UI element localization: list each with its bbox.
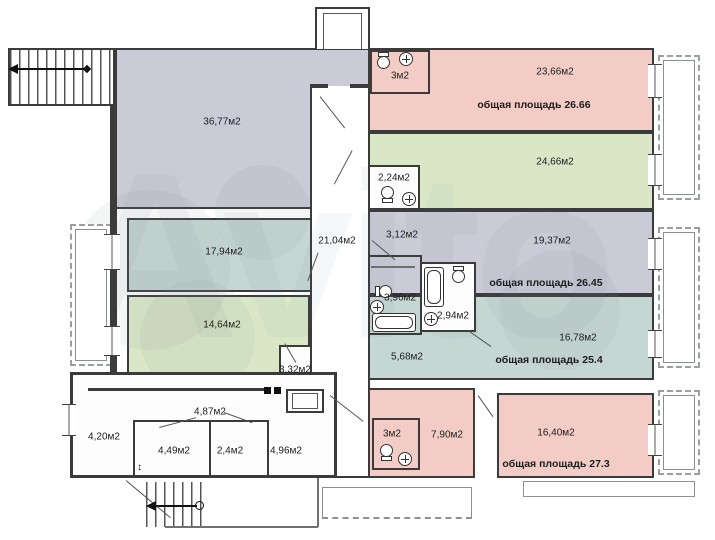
level-arrow-icon: ↕ (137, 462, 142, 473)
total-area-label: общая площадь 26.45 (489, 278, 602, 290)
room-label: 3,32м2 (279, 365, 311, 376)
room-label: 17,94м2 (205, 247, 242, 258)
bathtub-icon (372, 313, 416, 332)
room-label: 4,96м2 (270, 446, 302, 457)
total-area-label: общая площадь 25.4 (495, 355, 602, 367)
room-label: 2,94м2 (437, 311, 469, 322)
window (648, 238, 662, 270)
bathtub-icon (424, 267, 444, 307)
balcony-floor (663, 232, 695, 363)
stairs-direction-line (16, 68, 88, 70)
sink-icon (399, 52, 413, 66)
room-label: 23,66м2 (536, 67, 573, 78)
electrical-box (274, 387, 281, 394)
balcony-middle (658, 227, 700, 368)
stairs-start-circle (195, 501, 204, 510)
room-label: 3,96м2 (384, 293, 416, 304)
room-label: 3,12м2 (386, 230, 418, 241)
terrace-right (523, 481, 695, 497)
window (62, 404, 76, 436)
room-label: 5,68м2 (391, 352, 423, 363)
sink-icon (370, 300, 384, 314)
window (104, 234, 120, 270)
window (648, 424, 662, 456)
toilet-icon (380, 444, 393, 461)
sink-icon (402, 192, 416, 206)
total-area-label: общая площадь 27.3 (502, 459, 609, 471)
porch-right-line (317, 478, 319, 527)
window (648, 64, 662, 98)
room-label: 19,37м2 (533, 236, 570, 247)
room-label: 3м2 (383, 429, 401, 440)
window (104, 326, 120, 356)
washer-icon (424, 312, 438, 326)
window (648, 330, 662, 358)
room-label: 14,64м2 (203, 320, 240, 331)
stairs-arrow-icon (146, 501, 156, 511)
room-label: 36,77м2 (203, 117, 240, 128)
entrance-stairs-top (8, 48, 115, 106)
room-label: 7,90м2 (431, 430, 463, 441)
corridor-door-jamb (310, 84, 328, 88)
electrical-box (264, 387, 271, 394)
balcony-top (658, 55, 700, 200)
toilet-icon (452, 266, 465, 283)
toilet-icon (377, 52, 390, 69)
room-label: 2,4м2 (217, 446, 243, 457)
room-label: 16,40м2 (537, 428, 574, 439)
bathroom-counter (371, 266, 415, 268)
left-balcony-floor (75, 229, 107, 361)
room-label: 4,49м2 (158, 446, 190, 457)
sink-icon (398, 452, 412, 466)
room-label: 24,66м2 (536, 157, 573, 168)
total-area-label: общая площадь 26.66 (477, 100, 590, 112)
toilet-icon (381, 186, 394, 203)
room-label: 16,78м2 (559, 333, 596, 344)
room-label: 21,04м2 (318, 236, 355, 247)
window (648, 154, 662, 186)
wing-inner-wall (88, 388, 268, 391)
balcony-floor (663, 395, 695, 470)
room-36-77 (114, 48, 312, 209)
stairs-direction-line (153, 505, 197, 507)
floor-plan: Avito (0, 0, 715, 540)
balcony-bottom (658, 390, 700, 475)
room-36-77-extension (310, 48, 370, 88)
entrance-porch (322, 487, 472, 519)
porch-bottom-line (165, 526, 318, 528)
room-label: 2,24м2 (378, 173, 410, 184)
door-swing-line (478, 395, 494, 417)
stairs-arrow-icon (8, 64, 18, 74)
room-label: 4,87м2 (194, 407, 226, 418)
shaft-box-inner (292, 393, 318, 409)
room-label: 3м2 (391, 71, 409, 82)
elevator-shaft-inner (323, 13, 362, 49)
room-label: 4,20м2 (88, 432, 120, 443)
balcony-floor (663, 60, 695, 195)
corridor-door-jamb (350, 84, 370, 88)
